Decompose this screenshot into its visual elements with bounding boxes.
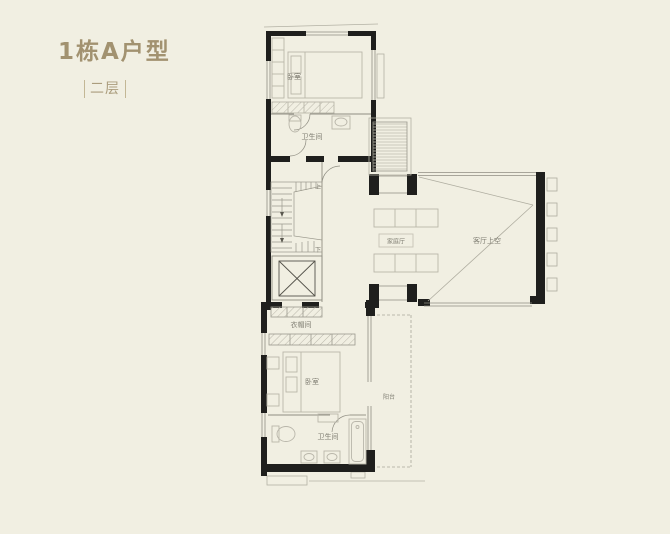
floor-plan-page: 1栋A户型 二层 <box>0 0 670 534</box>
closet-wardrobes <box>269 307 355 345</box>
staircase <box>271 182 322 252</box>
elevator-icon <box>272 256 322 300</box>
room-label-bedroom-bottom: 卧室 <box>305 377 319 386</box>
stair-down-label: 下 <box>315 247 321 254</box>
room-label-closet: 衣帽间 <box>291 320 312 329</box>
skylight-hatch <box>369 118 411 175</box>
stair-up-label: 上 <box>315 183 321 191</box>
room-label-living-void: 客厅上空 <box>473 236 501 245</box>
room-label-bathroom-bottom: 卫生间 <box>318 432 339 441</box>
room-label-bathroom-top: 卫生间 <box>302 132 323 141</box>
floor-plan-drawing: 上 下 <box>0 0 670 534</box>
bedroom-bottom-furniture <box>267 352 340 422</box>
family-hall-furniture <box>374 209 438 272</box>
balcony-outline <box>377 315 411 467</box>
room-label-family-hall: 家庭厅 <box>387 238 405 246</box>
room-label-bedroom-top: 卧室 <box>287 72 301 81</box>
room-label-balcony: 阳台 <box>383 393 395 401</box>
